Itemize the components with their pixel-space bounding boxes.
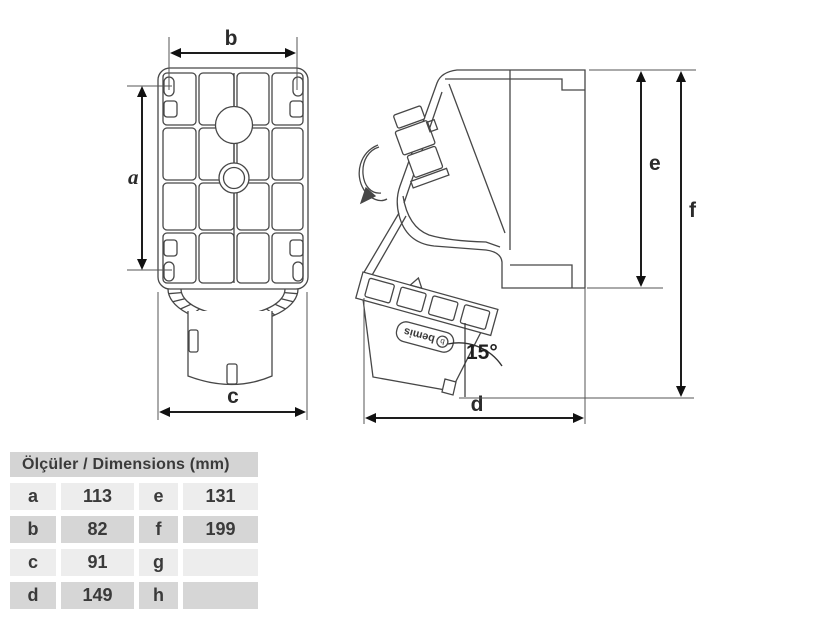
cover-foot-tab bbox=[442, 379, 456, 395]
dimension-drawing: b a c bbox=[0, 0, 825, 450]
dimensions-table: Ölçüler / Dimensions (mm) a 113 e 131 b … bbox=[10, 452, 258, 609]
dim-key: d bbox=[10, 582, 56, 609]
arrowhead bbox=[170, 48, 181, 58]
arrowhead bbox=[159, 407, 170, 417]
dim-key: e bbox=[139, 483, 178, 510]
arrowhead bbox=[636, 276, 646, 287]
dim-value: 113 bbox=[61, 483, 134, 510]
dim-key: h bbox=[139, 582, 178, 609]
table-row: d 149 h bbox=[10, 582, 258, 609]
arrowhead bbox=[676, 386, 686, 397]
table-row: a 113 e 131 bbox=[10, 483, 258, 510]
table-row: c 91 g bbox=[10, 549, 258, 576]
table-row: b 82 f 199 bbox=[10, 516, 258, 543]
dim-label-b: b bbox=[225, 27, 238, 50]
dim-label-a: a bbox=[128, 165, 139, 189]
dim-value: 131 bbox=[183, 483, 258, 510]
dim-value: 199 bbox=[183, 516, 258, 543]
clamp-hook bbox=[359, 145, 387, 201]
arrowhead bbox=[573, 413, 584, 423]
dim-label-d: d bbox=[471, 393, 484, 416]
dim-label-f: f bbox=[689, 199, 697, 222]
side-view: b bemis 15° bbox=[356, 70, 585, 397]
socket-cylinder bbox=[188, 311, 272, 385]
dim-key: a bbox=[10, 483, 56, 510]
flange-support bbox=[363, 213, 406, 277]
dim-label-e: e bbox=[649, 152, 661, 175]
dimension-e: e bbox=[587, 70, 696, 288]
angle-label: 15° bbox=[466, 341, 498, 364]
arrowhead bbox=[365, 413, 376, 423]
dim-label-c: c bbox=[227, 385, 239, 408]
arrowhead bbox=[137, 259, 147, 270]
front-view bbox=[158, 68, 308, 385]
dim-key: b bbox=[10, 516, 56, 543]
arrowhead bbox=[285, 48, 296, 58]
dim-key: g bbox=[139, 549, 178, 576]
dim-key: c bbox=[10, 549, 56, 576]
dim-key: f bbox=[139, 516, 178, 543]
technical-drawing-page: b a c bbox=[0, 0, 825, 625]
dim-value: 91 bbox=[61, 549, 134, 576]
dim-value bbox=[183, 549, 258, 576]
dim-value: 82 bbox=[61, 516, 134, 543]
cable-entry-hole bbox=[216, 107, 253, 144]
dim-value bbox=[183, 582, 258, 609]
arrowhead bbox=[137, 86, 147, 97]
hook-tip bbox=[361, 188, 375, 203]
dimensions-table-title: Ölçüler / Dimensions (mm) bbox=[10, 452, 258, 477]
arrowhead bbox=[636, 71, 646, 82]
arrowhead bbox=[295, 407, 306, 417]
dim-value: 149 bbox=[61, 582, 134, 609]
arrowhead bbox=[676, 71, 686, 82]
